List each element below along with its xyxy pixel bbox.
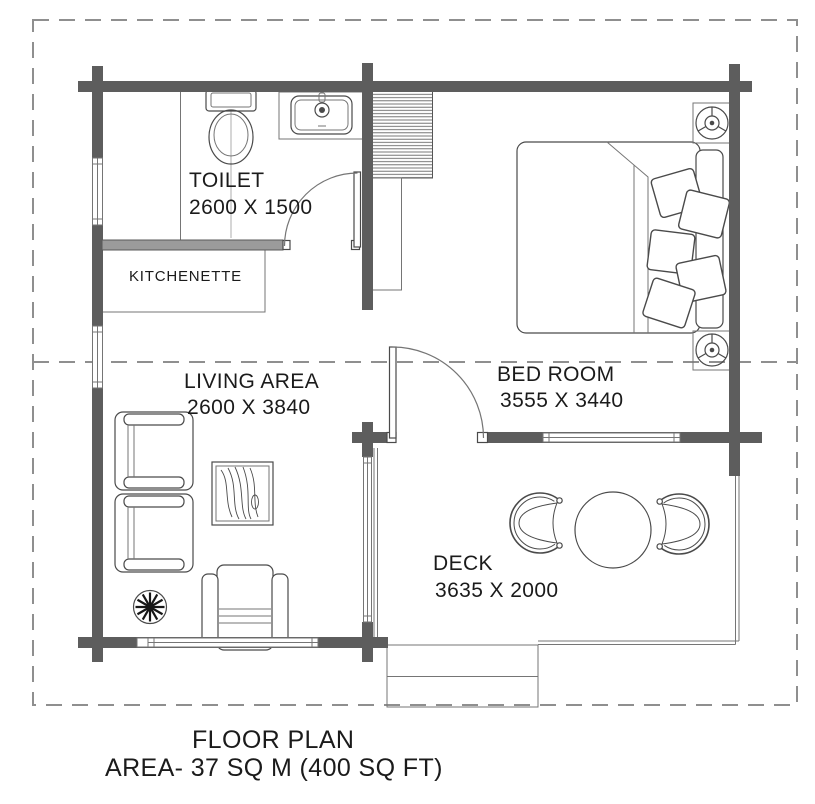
bedroom-dimensions: 3555 X 3440	[500, 390, 624, 411]
floor-plan-drawing	[0, 0, 815, 804]
window-bedroom-deck	[543, 433, 680, 442]
deck-chair-right	[649, 494, 709, 554]
nightstand-lamp-top	[693, 103, 731, 143]
floor-plan-title: FLOOR PLAN	[192, 728, 354, 753]
armchair-2	[115, 494, 193, 572]
deck-dimensions: 3635 X 2000	[435, 580, 559, 601]
floor-plan-page: TOILET 2600 X 1500 KITCHENETTE LIVING AR…	[0, 0, 815, 804]
potted-plant	[134, 591, 167, 624]
entry-steps	[387, 645, 538, 707]
window-living-deck	[364, 457, 372, 622]
interior-partition-wall	[102, 240, 283, 250]
window-bottom-living	[137, 638, 318, 647]
coffee-table	[212, 462, 273, 525]
toilet-dimensions: 2600 X 1500	[189, 197, 313, 218]
window-left-toilet	[93, 158, 103, 225]
living-area-label: LIVING AREA	[184, 371, 319, 392]
bedroom-label: BED ROOM	[497, 364, 615, 385]
living-area-dimensions: 2600 X 3840	[187, 397, 311, 418]
window-left-living	[93, 326, 103, 388]
closet	[373, 178, 402, 290]
kitchenette-label: KITCHENETTE	[129, 269, 242, 284]
toilet-label: TOILET	[189, 170, 265, 191]
deck-label: DECK	[433, 553, 493, 574]
wardrobe-hatched	[373, 88, 433, 178]
double-bed	[517, 142, 730, 333]
nightstand-lamp-bottom	[693, 331, 731, 370]
bathroom-sink	[279, 92, 363, 139]
deck-chair-left	[510, 493, 570, 553]
floor-plan-area: AREA- 37 SQ M (400 SQ FT)	[105, 756, 443, 781]
armchair-1	[115, 412, 193, 490]
deck-round-table	[575, 492, 651, 568]
